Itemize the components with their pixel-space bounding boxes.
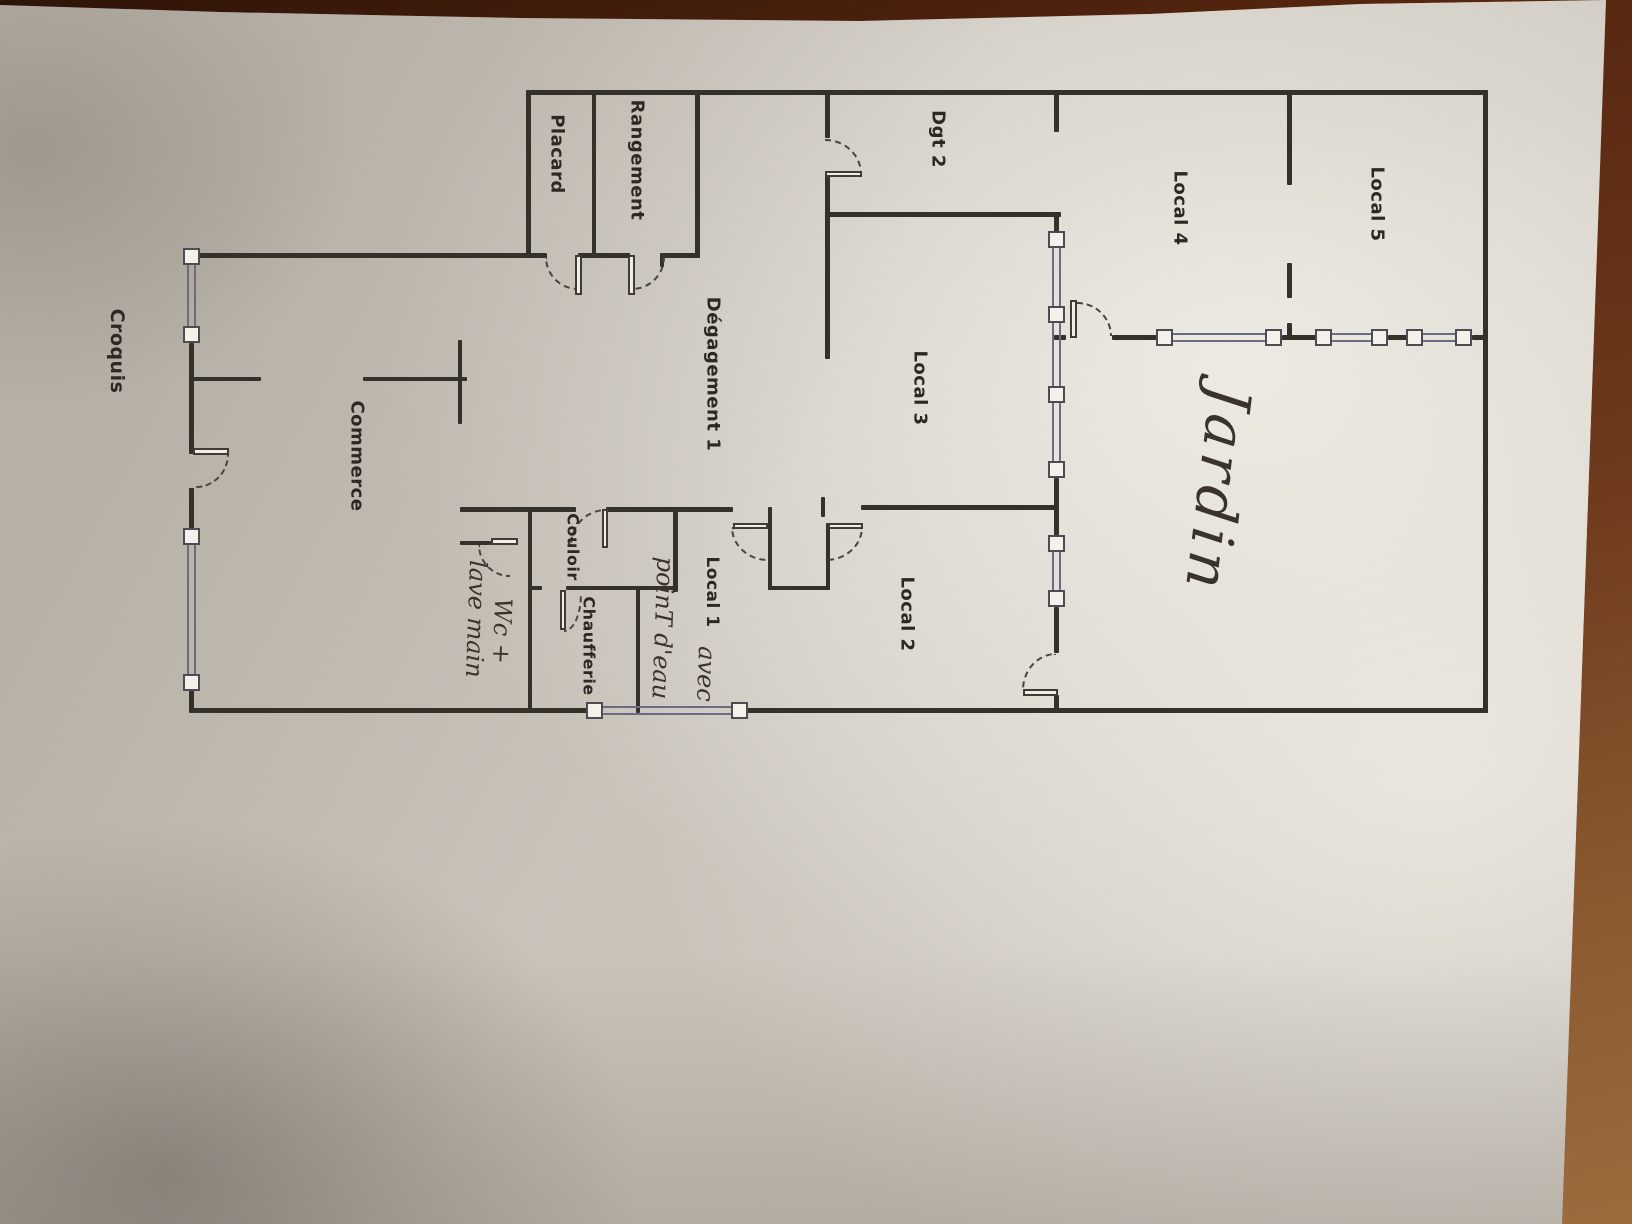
room-label-wc-lave-main-2: lave main: [460, 560, 492, 678]
window-frame-box: [183, 674, 200, 691]
room-label-dgt-2: Dgt 2: [928, 110, 949, 168]
door-swing-arc: [826, 527, 863, 561]
door-leaf: [491, 538, 518, 545]
door-swing-arc: [1077, 302, 1112, 336]
window-frame-box: [1048, 306, 1065, 323]
window-glazing: [1172, 333, 1266, 342]
door-leaf: [628, 255, 635, 295]
door-leaf: [733, 523, 768, 529]
wall: [460, 507, 576, 512]
wall: [189, 690, 194, 712]
window-frame-box: [1371, 329, 1388, 346]
wall: [768, 586, 830, 590]
door-leaf: [1070, 300, 1077, 338]
window-frame-box: [1048, 590, 1065, 607]
window-glazing: [602, 706, 732, 715]
wall: [636, 586, 640, 713]
room-label-placard: Placard: [547, 114, 568, 194]
door-swing-arc: [196, 454, 229, 488]
window-glazing: [1052, 551, 1061, 591]
door-swing-arc: [1022, 653, 1056, 690]
window-frame-box: [731, 702, 748, 719]
wall: [528, 541, 532, 713]
window-frame-box: [183, 528, 200, 545]
window-frame-box: [183, 326, 200, 343]
wall: [746, 708, 1488, 713]
room-label-point-eau: poinT d'eau: [647, 556, 680, 699]
floorplan-drawing: CroquisPlacardRangementDgt 2Local 4Local…: [0, 0, 1632, 1224]
room-label-couloir: Couloir: [564, 513, 583, 580]
room-label-jardin: Jardin: [1172, 382, 1265, 597]
window-frame-box: [1048, 231, 1065, 248]
door-leaf: [825, 171, 862, 177]
paper-sheet: CroquisPlacardRangementDgt 2Local 4Local…: [0, 0, 1632, 1224]
room-label-local-2: Local 2: [897, 576, 918, 651]
room-label-degagement-1: Dégagement 1: [703, 297, 724, 451]
door-leaf: [828, 523, 863, 529]
room-label-local-3: Local 3: [910, 350, 931, 425]
room-label-rangement: Rangement: [627, 100, 648, 221]
door-swing-arc: [632, 257, 665, 290]
wall: [1287, 90, 1292, 185]
window-frame-box: [1265, 329, 1282, 346]
wall: [363, 377, 467, 381]
wall: [458, 340, 462, 424]
door-swing-arc: [545, 257, 578, 290]
door-leaf: [602, 509, 608, 548]
room-label-local-1: Local 1: [702, 556, 722, 627]
window-frame-box: [1048, 535, 1065, 552]
window-frame-box: [1048, 386, 1065, 403]
wall: [695, 90, 700, 258]
wall: [526, 253, 547, 258]
window-glazing: [187, 264, 196, 327]
window-frame-box: [1048, 461, 1065, 478]
window-glazing: [1331, 333, 1372, 342]
window-frame-box: [1315, 329, 1332, 346]
wall: [191, 377, 261, 381]
window-glazing: [1052, 247, 1061, 307]
window-frame-box: [1406, 329, 1423, 346]
room-label-local-4: Local 4: [1170, 170, 1191, 245]
wall: [1054, 695, 1059, 712]
wall: [663, 253, 700, 258]
wall: [189, 343, 194, 454]
wall: [1112, 335, 1159, 340]
wall: [1054, 90, 1059, 132]
room-label-chaufferie: Chaufferie: [580, 596, 599, 695]
door-leaf: [1023, 689, 1058, 696]
room-label-local-5: Local 5: [1367, 166, 1388, 241]
wall: [825, 212, 1061, 217]
window-glazing: [1422, 333, 1456, 342]
wall: [1054, 607, 1059, 653]
room-label-avec: avec: [691, 646, 721, 702]
window-glazing: [1052, 322, 1061, 387]
wall: [825, 176, 830, 359]
wall: [592, 90, 596, 257]
door-leaf: [575, 255, 582, 295]
wall: [578, 253, 630, 258]
room-label-croquis: Croquis: [106, 309, 128, 394]
window-frame-box: [586, 702, 603, 719]
wall: [606, 507, 733, 512]
wall: [526, 90, 1488, 95]
wall: [1483, 90, 1488, 713]
door-leaf: [193, 448, 229, 455]
room-label-commerce: Commerce: [347, 400, 368, 511]
window-frame-box: [183, 248, 200, 265]
wall: [528, 586, 542, 590]
wall: [821, 497, 825, 517]
door-leaf: [560, 590, 566, 630]
wall: [189, 488, 194, 532]
room-label-wc-lave-main-1: Wc +: [487, 598, 517, 665]
wall: [1472, 335, 1488, 340]
wall: [768, 507, 772, 590]
door-swing-arc: [825, 139, 862, 174]
door-swing-arc: [731, 527, 768, 561]
wall: [191, 253, 531, 258]
wall: [1287, 323, 1292, 340]
window-glazing: [187, 544, 196, 675]
wall: [861, 505, 1056, 510]
wall: [825, 90, 830, 138]
wall: [526, 90, 531, 258]
wall: [528, 507, 532, 545]
window-glazing: [1052, 402, 1061, 462]
wall: [1287, 263, 1292, 298]
window-frame-box: [1156, 329, 1173, 346]
window-frame-box: [1455, 329, 1472, 346]
